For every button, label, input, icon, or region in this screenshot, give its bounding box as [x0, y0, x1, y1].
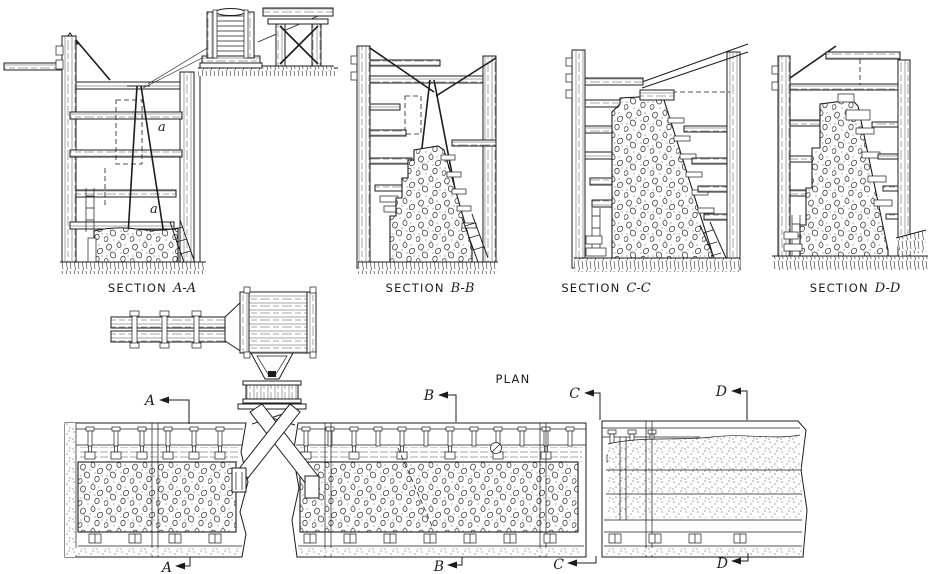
- section-dd-drawing: [772, 46, 928, 270]
- sand-fill-in-plan: [608, 435, 802, 518]
- svg-text:C: C: [569, 386, 580, 402]
- svg-text:B: B: [423, 388, 434, 404]
- arrow-left-icon: [731, 558, 741, 565]
- brace-annotation-upper: a: [158, 120, 166, 135]
- concrete-first-layer: [94, 228, 178, 262]
- plan-view: PLAN A B C D A B: [65, 287, 807, 574]
- counterweight-box: [240, 292, 316, 353]
- right-sheeting-wall: [727, 52, 740, 270]
- arrow-left-icon: [731, 388, 741, 395]
- boom-timber: [111, 317, 229, 328]
- section-bb-drawing: [351, 46, 498, 274]
- plan-cut-marker-c-top: C: [569, 386, 600, 420]
- plan-title: PLAN: [496, 372, 531, 386]
- svg-text:D: D: [715, 384, 727, 400]
- arrow-left-icon: [584, 390, 594, 397]
- plan-cut-marker-a-top: A: [143, 393, 189, 424]
- left-sheeting-wall: [572, 50, 585, 268]
- arrow-left-icon: [175, 563, 185, 570]
- svg-text:D: D: [716, 556, 728, 572]
- brace-annotation-lower: a: [150, 202, 158, 217]
- svg-text:A: A: [143, 393, 155, 409]
- boom-timber: [111, 331, 229, 342]
- turntable: [246, 385, 298, 399]
- hoisting-drum: [200, 9, 262, 69]
- arrow-left-icon: [159, 397, 169, 404]
- section-aa-label: SECTIONA-A: [108, 281, 196, 296]
- concrete-in-plan: [300, 462, 578, 532]
- left-sheeting-wall: [778, 56, 790, 262]
- arrow-left-icon: [438, 392, 448, 399]
- arrow-left-icon: [447, 562, 457, 569]
- section-dd-label: SECTIOND-D: [810, 281, 901, 296]
- plan-wall-segment-1: [65, 423, 248, 557]
- plan-cut-marker-c-bottom: C: [553, 556, 596, 573]
- svg-text:C: C: [553, 557, 564, 573]
- svg-text:B: B: [433, 559, 444, 574]
- plan-cut-marker-b-top: B: [423, 388, 456, 422]
- plan-wall-segment-2: [292, 423, 586, 557]
- svg-text:A: A: [160, 560, 172, 574]
- section-cc-label: SECTIONC-C: [561, 281, 650, 296]
- left-sheeting-wall: [357, 46, 370, 268]
- trestle-staging: [262, 8, 334, 74]
- plan-cut-marker-b-bottom: B: [433, 557, 462, 574]
- right-sheeting-wall: [180, 72, 194, 268]
- engineering-figure: a a SECTIONA-A SECTIONB: [0, 0, 928, 574]
- concrete-in-plan: [78, 462, 236, 532]
- section-bb-label: SECTIONB-B: [386, 281, 475, 296]
- trench-bottom: [60, 262, 206, 274]
- section-aa-drawing: a a: [4, 8, 338, 274]
- plan-cut-marker-a-bottom: A: [160, 557, 190, 574]
- right-sheeting-wall: [483, 56, 496, 268]
- arrow-left-icon: [567, 560, 577, 567]
- plan-wall-segment-3: [602, 421, 807, 557]
- engraving-canvas: a a SECTIONA-A SECTIONB: [0, 0, 928, 574]
- plan-cut-marker-d-top: D: [715, 384, 747, 420]
- section-cc-drawing: [566, 44, 748, 272]
- projecting-boom-timber: [4, 63, 62, 70]
